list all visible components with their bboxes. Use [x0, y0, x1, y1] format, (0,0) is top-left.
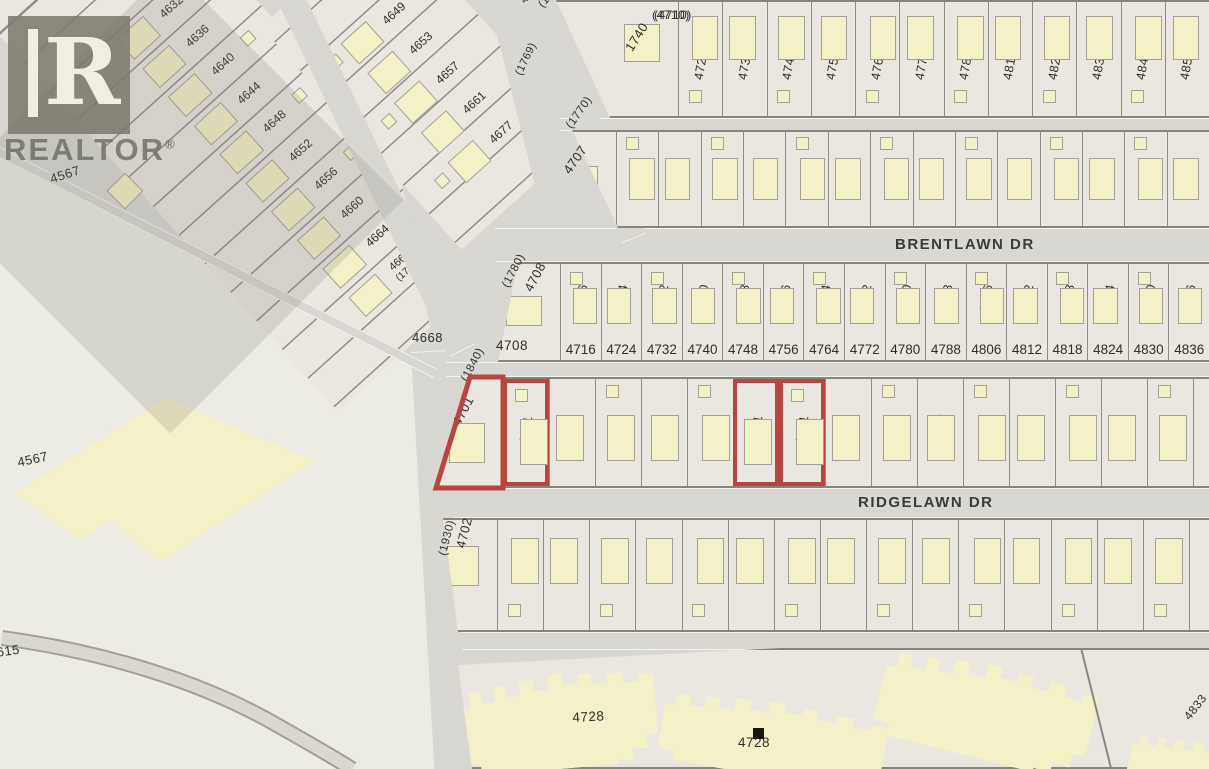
- lot-4841: 4841: [1101, 379, 1147, 486]
- building: [1056, 272, 1069, 285]
- building: [1017, 415, 1045, 461]
- lot-number-4632: 4632: [157, 0, 186, 22]
- building: [870, 16, 897, 60]
- building: [1158, 385, 1171, 398]
- building: [1173, 16, 1200, 60]
- building: [1089, 158, 1114, 200]
- building: [732, 272, 745, 285]
- building-marker-4728: [753, 728, 764, 739]
- lot-front-number-4780: 4780: [890, 342, 920, 357]
- building: [919, 158, 944, 200]
- lot-4751: 4751: [687, 379, 733, 486]
- building: [1135, 16, 1162, 60]
- lot-4852: 4852: [1143, 520, 1189, 630]
- building: [570, 272, 583, 285]
- building: [816, 288, 840, 324]
- condo-building-1: [655, 683, 890, 769]
- building: [753, 158, 778, 200]
- lot-4817: 4817: [1040, 132, 1082, 226]
- building: [894, 272, 907, 285]
- lot-4781: 4781: [825, 379, 871, 486]
- lot-4797: 4797: [917, 379, 963, 486]
- building: [367, 51, 411, 95]
- lot-4761: 4761: [733, 379, 779, 486]
- building: [934, 288, 958, 324]
- building: [322, 245, 366, 289]
- lot-front-number-4806: 4806: [971, 342, 1001, 357]
- lot-4777: 4777: [870, 132, 912, 226]
- lot-4767: 4767: [828, 132, 870, 226]
- lot-4740: 4740: [767, 2, 811, 116]
- lot-4732: 47324732: [641, 264, 682, 360]
- building: [788, 538, 816, 584]
- building: [957, 16, 984, 60]
- lot-front-number-4764: 4764: [809, 342, 839, 357]
- lot-4812: 48124812: [1006, 264, 1047, 360]
- building: [271, 187, 315, 231]
- building: [697, 538, 725, 584]
- lot-4770: 4770: [899, 2, 943, 116]
- lot-4798: 4798: [912, 520, 958, 630]
- building: [380, 113, 397, 130]
- building: [832, 415, 860, 461]
- street-label-brentlawn: BRENTLAWN DR: [895, 236, 1035, 253]
- building: [348, 273, 392, 317]
- building: [813, 272, 826, 285]
- lot-4805: 4805: [955, 132, 997, 226]
- building: [651, 272, 664, 285]
- building: [711, 137, 724, 150]
- lane-north: [560, 118, 1209, 131]
- lot-number-4660: 4660: [338, 194, 367, 222]
- building: [954, 90, 967, 103]
- building: [878, 538, 906, 584]
- building: [142, 44, 186, 88]
- lane-mid: [430, 362, 1209, 377]
- lot-4822: 4822: [1004, 520, 1050, 630]
- lot-front-number-4824: 4824: [1093, 342, 1123, 357]
- building: [770, 288, 794, 324]
- building: [1050, 137, 1063, 150]
- lot-number-4652: 4652: [286, 137, 315, 165]
- building: [712, 158, 737, 200]
- building: [394, 80, 438, 124]
- building: [508, 604, 521, 617]
- lot-4823: 4823: [1082, 132, 1124, 226]
- building: [240, 30, 257, 47]
- lot-4772: 47724772: [844, 264, 885, 360]
- lot-4810: 4810: [988, 2, 1032, 116]
- building: [702, 415, 730, 461]
- building: [965, 137, 978, 150]
- lot-4731: 4731: [595, 379, 641, 486]
- building: [907, 16, 934, 60]
- building: [297, 216, 341, 260]
- building: [511, 538, 539, 584]
- building: [736, 288, 760, 324]
- lot-4791: 4791: [871, 379, 917, 486]
- building: [1065, 538, 1093, 584]
- lane-1769: (1769): [513, 41, 539, 78]
- lot-front-number-4772: 4772: [850, 342, 880, 357]
- curved-road: [0, 610, 400, 769]
- building: [1178, 288, 1202, 324]
- building: [1054, 158, 1079, 200]
- lot-4851: 4851: [1147, 379, 1193, 486]
- lot-4772: 4772: [774, 520, 820, 630]
- building: [434, 172, 451, 189]
- lot-4732: 4732: [589, 520, 635, 630]
- lot-4842: 4842: [1097, 520, 1143, 630]
- lot-4730: 4730: [722, 2, 766, 116]
- building: [556, 415, 584, 461]
- lot-partial: [1189, 520, 1209, 630]
- building: [877, 604, 890, 617]
- building: [291, 87, 308, 104]
- lot-4750: 4750: [811, 2, 855, 116]
- lot-4835: 4835: [1167, 132, 1209, 226]
- lot-4832: 4832: [1051, 520, 1097, 630]
- lot-front-number-4818: 4818: [1053, 342, 1083, 357]
- lot-4806: 48064806: [966, 264, 1007, 360]
- lot-4722: 4722: [543, 520, 589, 630]
- building: [624, 24, 660, 62]
- lot-4771: 4771: [779, 379, 825, 486]
- lot-4831: 4831: [1055, 379, 1101, 486]
- building: [927, 415, 955, 461]
- building: [652, 288, 676, 324]
- lot-4802: 4802: [958, 520, 1004, 630]
- lot-4840: 4840: [1121, 2, 1165, 116]
- lot-4721: 4721: [549, 379, 595, 486]
- lot-front-number-4756: 4756: [769, 342, 799, 357]
- building: [1138, 272, 1151, 285]
- building: [796, 419, 824, 465]
- building: [884, 158, 909, 200]
- building: [626, 137, 639, 150]
- lot-4757: 4757: [785, 132, 827, 226]
- lot-number-4649: 4649: [380, 0, 409, 28]
- lot-number-4677: 4677: [487, 119, 516, 147]
- lot-4811: 4811: [997, 132, 1039, 226]
- lot-front-number-4724: 4724: [606, 342, 636, 357]
- lot-front-number-4830: 4830: [1134, 342, 1164, 357]
- building: [800, 158, 825, 200]
- lot-4747: 4747: [743, 132, 785, 226]
- lot-4824: 48244824: [1087, 264, 1128, 360]
- lot-4727: 4727: [658, 132, 700, 226]
- building: [573, 288, 597, 324]
- building: [194, 102, 238, 146]
- lot-4830: 4830: [1076, 2, 1120, 116]
- building: [600, 604, 613, 617]
- lot-4720: 4720: [678, 2, 722, 116]
- building: [821, 16, 848, 60]
- lot-4760: 4760: [855, 2, 899, 116]
- building: [562, 166, 598, 202]
- building: [1093, 288, 1117, 324]
- lot-front-number-4740: 4740: [687, 342, 717, 357]
- lot-4788: 47884788: [925, 264, 966, 360]
- building: [606, 385, 619, 398]
- building: [785, 604, 798, 617]
- building: [665, 158, 690, 200]
- lane-south: [448, 632, 1209, 650]
- building: [1066, 385, 1079, 398]
- building: [629, 158, 654, 200]
- building: [691, 288, 715, 324]
- building: [219, 130, 263, 174]
- building: [975, 272, 988, 285]
- building: [1154, 604, 1167, 617]
- lot-4752: 4752: [682, 520, 728, 630]
- building: [744, 419, 772, 465]
- building: [340, 21, 384, 65]
- lot-4818: 48184818: [1047, 264, 1088, 360]
- lot-number-4653: 4653: [407, 30, 436, 58]
- lot-4737: 4737: [701, 132, 743, 226]
- lot-4792: 4792: [866, 520, 912, 630]
- building: [883, 415, 911, 461]
- lot-4762: 4762: [728, 520, 774, 630]
- lot-4742: 4742: [635, 520, 681, 630]
- building: [607, 415, 635, 461]
- building: [1013, 288, 1037, 324]
- lot-4782: 4782: [820, 520, 866, 630]
- building: [777, 90, 790, 103]
- lot-4780: 4780: [944, 2, 988, 116]
- building: [827, 538, 855, 584]
- building: [835, 158, 860, 200]
- building: [980, 288, 1004, 324]
- building: [1069, 415, 1097, 461]
- lot-4724: 47244724: [601, 264, 642, 360]
- lot-front-number-4732: 4732: [647, 342, 677, 357]
- lot-4780: 47804780: [885, 264, 926, 360]
- building: [601, 538, 629, 584]
- condo-building-0: [458, 666, 661, 769]
- building: [995, 16, 1022, 60]
- building: [550, 538, 578, 584]
- building: [1155, 538, 1183, 584]
- lot-4716: 47164716: [560, 264, 601, 360]
- building: [729, 16, 756, 60]
- lot-4741: 4741: [641, 379, 687, 486]
- building: [1139, 288, 1163, 324]
- building: [1044, 16, 1071, 60]
- lot-number-4648: 4648: [260, 108, 289, 136]
- building: [607, 288, 631, 324]
- lot-number-4644: 4644: [235, 79, 264, 107]
- building: [1173, 158, 1198, 200]
- building: [1138, 158, 1163, 200]
- street-brentlawn: [495, 228, 1209, 262]
- building: [651, 415, 679, 461]
- building: [116, 16, 160, 60]
- lot-front-number-4788: 4788: [931, 342, 961, 357]
- building: [515, 389, 528, 402]
- building: [922, 538, 950, 584]
- building: [978, 415, 1006, 461]
- lot-number-4657: 4657: [433, 59, 462, 87]
- building: [646, 538, 674, 584]
- building: [1013, 538, 1041, 584]
- building: [421, 110, 465, 154]
- lot-front-number-4836: 4836: [1174, 342, 1204, 357]
- building: [791, 389, 804, 402]
- building: [778, 16, 805, 60]
- lot-front-number-4716: 4716: [566, 342, 596, 357]
- lot-4829: 4829: [1124, 132, 1166, 226]
- building: [1086, 16, 1113, 60]
- lot-4850: 4850: [1165, 2, 1209, 116]
- building: [850, 288, 874, 324]
- building: [520, 419, 548, 465]
- building: [1134, 137, 1147, 150]
- lot-number-4640: 4640: [209, 51, 238, 79]
- street-ridgelawn: [436, 488, 1209, 518]
- building: [866, 90, 879, 103]
- building: [698, 385, 711, 398]
- building: [1062, 604, 1075, 617]
- building: [245, 159, 289, 203]
- plat-map: BRENTLAWN DR RIDGELAWN DR R REALTOR® (47…: [0, 0, 1209, 769]
- building: [966, 158, 991, 200]
- building: [1060, 288, 1084, 324]
- building: [796, 137, 809, 150]
- highlight-outline-4701: [425, 372, 515, 497]
- lot-4756: 47564756: [763, 264, 804, 360]
- lot-front-number-4748: 4748: [728, 342, 758, 357]
- building: [736, 538, 764, 584]
- building: [969, 604, 982, 617]
- building: [692, 604, 705, 617]
- building: [168, 73, 212, 117]
- lot-number-4656: 4656: [312, 165, 341, 193]
- lot-4740: 47404740: [682, 264, 723, 360]
- lot-front-number-4812: 4812: [1012, 342, 1042, 357]
- building: [974, 385, 987, 398]
- lot-4820: 4820: [1032, 2, 1076, 116]
- lot-4836: 48364836: [1168, 264, 1209, 360]
- building: [1043, 90, 1056, 103]
- building: [896, 288, 920, 324]
- lot-4712: 4712: [497, 520, 543, 630]
- building: [1108, 415, 1136, 461]
- lot-number-4661: 4661: [460, 89, 489, 117]
- lot-number-4636: 4636: [183, 22, 212, 50]
- building: [1007, 158, 1032, 200]
- building: [692, 16, 719, 60]
- lot-4801: 4801: [963, 379, 1009, 486]
- lot-4748: 47484748: [722, 264, 763, 360]
- lot-4787: 4787: [913, 132, 955, 226]
- building: [882, 385, 895, 398]
- building: [1159, 415, 1187, 461]
- street-label-ridgelawn: RIDGELAWN DR: [858, 494, 994, 511]
- building: [974, 538, 1002, 584]
- building: [1104, 538, 1132, 584]
- building: [880, 137, 893, 150]
- building: [689, 90, 702, 103]
- lot-4764: 47644764: [803, 264, 844, 360]
- condo-building-3: [1123, 727, 1209, 769]
- building: [448, 140, 492, 184]
- lot-partial: [1193, 379, 1209, 486]
- building: [1131, 90, 1144, 103]
- condo-building-2: [870, 639, 1102, 769]
- lot-4821: 4821: [1009, 379, 1055, 486]
- lot-4830: 48304830: [1128, 264, 1169, 360]
- building: [506, 296, 542, 326]
- lot-4717: 4717: [616, 132, 658, 226]
